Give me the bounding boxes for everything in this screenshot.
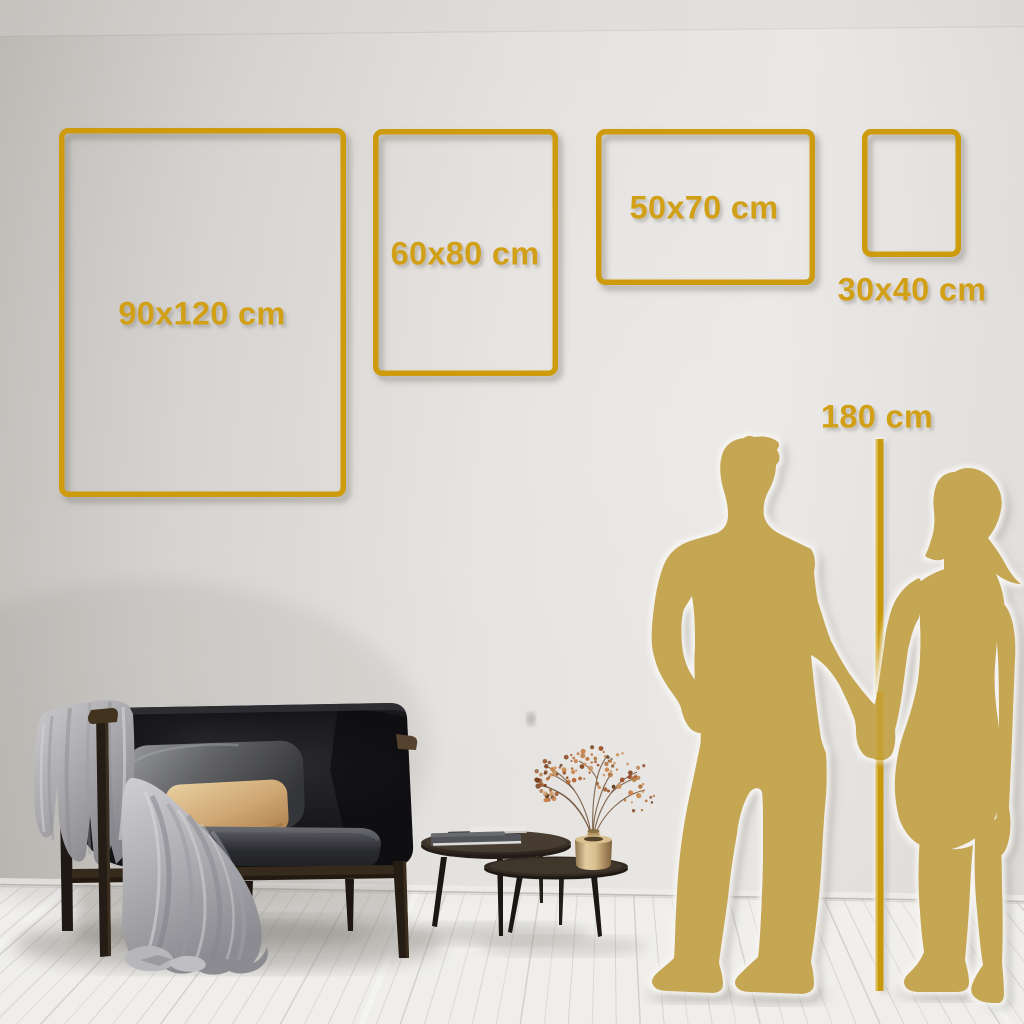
svg-text:30x40 cm: 30x40 cm [838, 272, 987, 308]
svg-text:180 cm: 180 cm [821, 399, 933, 435]
svg-text:60x80 cm: 60x80 cm [391, 236, 540, 272]
svg-text:90x120 cm: 90x120 cm [118, 296, 285, 332]
svg-text:50x70 cm: 50x70 cm [630, 190, 779, 226]
